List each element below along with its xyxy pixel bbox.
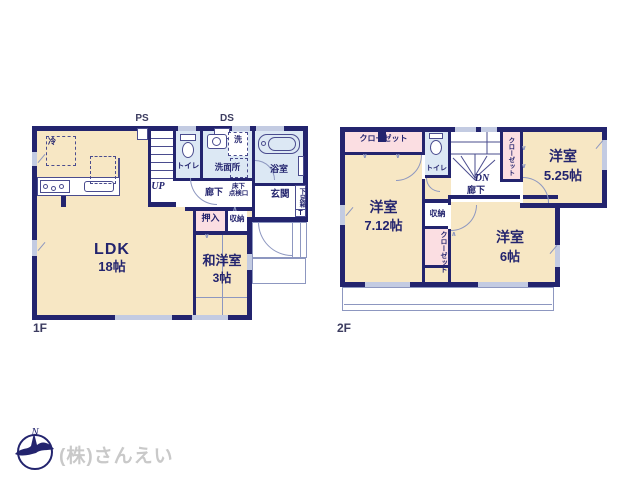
window — [178, 126, 196, 131]
bathroom-label: 浴室 — [255, 165, 303, 175]
ldk-size-label: 18帖 — [72, 260, 152, 274]
toilet-bowl-icon — [430, 140, 442, 155]
window — [32, 152, 37, 166]
tatami-room-label: 和洋室 — [196, 254, 248, 268]
pantry-space — [90, 156, 116, 184]
washroom-label: 洗面所 — [203, 163, 252, 172]
toilet-tank-icon — [429, 133, 443, 139]
window — [192, 315, 228, 320]
ps-label: PS — [130, 114, 154, 125]
opening-mark-icon: ∨ — [362, 153, 368, 160]
opening-mark-icon: ∨ — [395, 153, 401, 160]
wall — [148, 202, 176, 207]
approach-step — [252, 258, 306, 284]
stairs-down-label: DN — [468, 174, 496, 185]
room-b-size-label: 5.25帖 — [523, 169, 603, 183]
toilet-tank-icon — [180, 134, 196, 141]
wall — [61, 196, 66, 207]
stairs-up-label: UP — [144, 182, 172, 193]
balcony — [342, 287, 554, 311]
closet-right-label: クローゼット — [506, 134, 513, 178]
wall — [148, 126, 151, 207]
hallway-label-2f: 廊下 — [451, 186, 501, 196]
window — [256, 126, 284, 131]
burner-icon — [43, 184, 48, 189]
wall — [173, 126, 176, 181]
room-a-size-label: 7.12帖 — [345, 219, 422, 233]
tatami-room-size-label: 3帖 — [196, 272, 248, 285]
window — [232, 126, 250, 131]
wall — [422, 127, 425, 287]
floorplan-canvas: 冷 洗 下足箱 T ∨ ∧ トイレ 洗面所 — [0, 0, 640, 480]
wall — [520, 203, 607, 208]
floor2-label: 2F — [337, 322, 361, 335]
window — [115, 315, 172, 320]
fridge-label: 冷 — [48, 138, 56, 146]
oshiire-label: 押入 — [196, 214, 225, 224]
counter-edge — [118, 158, 120, 177]
burner-icon — [59, 184, 64, 189]
opening-mark-icon: ∨ — [204, 233, 210, 240]
burner-icon — [51, 186, 56, 191]
window — [455, 127, 476, 132]
room-b-label: 洋室 — [523, 149, 603, 164]
balcony-rail-line — [344, 304, 552, 305]
room-c-size-label: 6帖 — [465, 250, 555, 264]
floor1-plan: 冷 洗 下足箱 T ∨ ∧ トイレ 洗面所 — [32, 126, 308, 320]
window — [481, 127, 497, 132]
floor-hatch-label: 床下 点検口 — [225, 184, 252, 198]
opening-mark-icon: ∧ — [451, 231, 457, 238]
closet-mid-label: クローゼット — [427, 231, 448, 263]
tatami-line — [196, 297, 247, 298]
washer-label: 洗 — [228, 136, 248, 144]
room-a-label: 洋室 — [345, 200, 422, 215]
ldk-label: LDK — [72, 242, 152, 259]
closet-top-left-label: クローゼット — [345, 135, 422, 143]
shoe-box-t-label: T — [296, 209, 305, 217]
window — [555, 245, 560, 267]
floor2-plan: ∨ ∨ ∨ ∨ ∧ クローゼット トイレ クローゼット 洋室 5.25帖 廊下 … — [340, 127, 607, 317]
compass-n-label: N — [30, 426, 39, 438]
toilet-label-2f: トイレ — [424, 165, 449, 172]
wall — [200, 126, 203, 181]
wall — [422, 199, 451, 203]
storage-label-1f: 収納 — [227, 215, 247, 223]
floor1-label: 1F — [33, 322, 57, 335]
toilet-bowl-icon — [182, 142, 194, 158]
storage-label-2f: 収納 — [425, 210, 450, 218]
pipe-space-box — [137, 128, 148, 140]
porch — [252, 222, 307, 258]
sink-basin-icon — [212, 137, 221, 146]
toilet-label-1f: トイレ — [176, 162, 200, 170]
ds-label: DS — [215, 114, 239, 125]
floor-hatch-line2: 点検口 — [229, 190, 249, 197]
compass-icon: N — [12, 426, 58, 472]
wall — [422, 226, 451, 229]
window — [32, 240, 37, 256]
company-logo-text: (株)さんえい — [59, 441, 174, 468]
bathtub-inner — [268, 137, 296, 151]
room-c-label: 洋室 — [465, 230, 555, 245]
opening-mark-icon: ∧ — [232, 206, 238, 213]
wall — [500, 127, 503, 182]
entrance-label: 玄関 — [260, 190, 300, 200]
drain-icon — [261, 141, 266, 146]
